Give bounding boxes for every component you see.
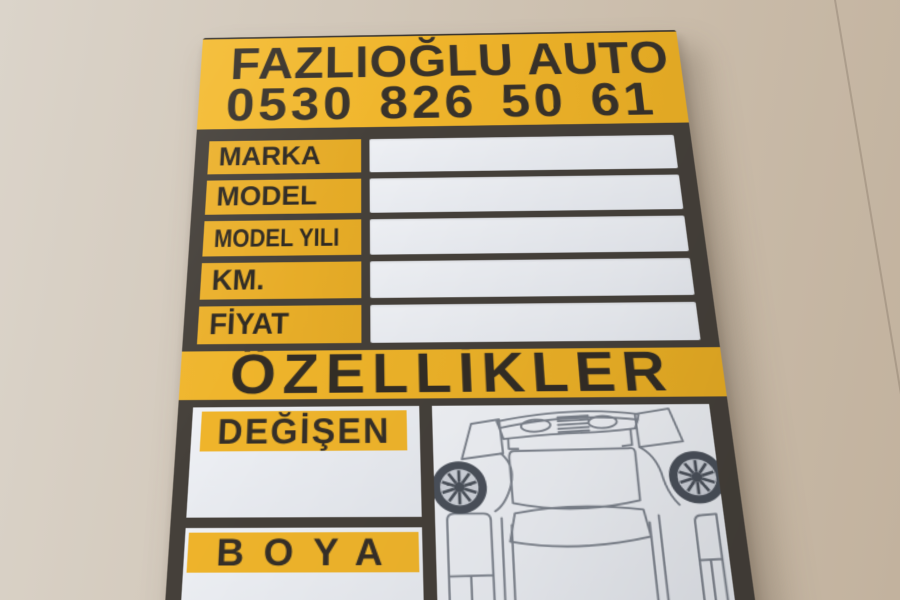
- phone-number-text: 0530 826 50 61: [225, 77, 659, 125]
- car-top-view-icon: [432, 404, 744, 600]
- left-column: DEĞİŞEN BOYA: [177, 406, 425, 600]
- spec-row-model-yili: MODEL YILI: [202, 216, 689, 257]
- spec-label: FİYAT: [197, 305, 361, 344]
- sign-bottom-section: DEĞİŞEN BOYA: [177, 404, 744, 600]
- paint-label-text: BOYA: [203, 532, 402, 573]
- paint-panel: BOYA: [177, 527, 425, 600]
- spec-label-text: MODEL: [215, 179, 317, 214]
- phone-number: 0530 826 50 61: [197, 77, 688, 126]
- car-diagram-panel: [432, 404, 744, 600]
- spec-value-field: [370, 302, 700, 343]
- spec-label: KM.: [200, 261, 362, 299]
- front-right-wheel: [666, 451, 728, 504]
- spec-value-field: [370, 174, 684, 212]
- sign-header: FAZLIOĞLU AUTO 0530 826 50 61: [197, 30, 689, 130]
- spec-label: MODEL YILI: [202, 219, 361, 256]
- replaced-label-text: DEĞİŞEN: [216, 410, 390, 451]
- spec-label: MODEL: [205, 179, 361, 215]
- car-sale-sign: FAZLIOĞLU AUTO 0530 826 50 61 MARKA MODE…: [161, 30, 765, 600]
- features-title-text: ÖZELLİKLER: [229, 348, 676, 400]
- spec-value-field: [370, 216, 689, 255]
- features-band: ÖZELLİKLER: [179, 347, 727, 400]
- spec-value-field: [369, 135, 678, 172]
- spec-label: MARKA: [207, 139, 361, 174]
- spec-row-fiyat: FİYAT: [197, 302, 701, 345]
- spec-label-text: MARKA: [218, 140, 321, 175]
- photo-scene: FAZLIOĞLU AUTO 0530 826 50 61 MARKA MODE…: [0, 0, 900, 600]
- spec-row-model: MODEL: [205, 174, 684, 214]
- spec-value-field: [370, 258, 695, 298]
- sign-body: MARKA MODEL MODEL YILI KM. FİYAT: [161, 122, 764, 600]
- replaced-label: DEĞİŞEN: [200, 410, 408, 451]
- paint-label: BOYA: [187, 532, 420, 573]
- spec-row-marka: MARKA: [207, 135, 678, 175]
- spec-label-text: MODEL YILI: [213, 220, 339, 257]
- front-left-wheel: [432, 461, 488, 514]
- spec-row-km: KM.: [200, 258, 695, 300]
- spec-label-text: KM.: [211, 262, 265, 299]
- panel-divider: [186, 517, 422, 528]
- replaced-parts-panel: DEĞİŞEN: [186, 406, 421, 518]
- spec-label-text: FİYAT: [208, 306, 289, 345]
- spec-rows: MARKA MODEL MODEL YILI KM. FİYAT: [197, 135, 702, 352]
